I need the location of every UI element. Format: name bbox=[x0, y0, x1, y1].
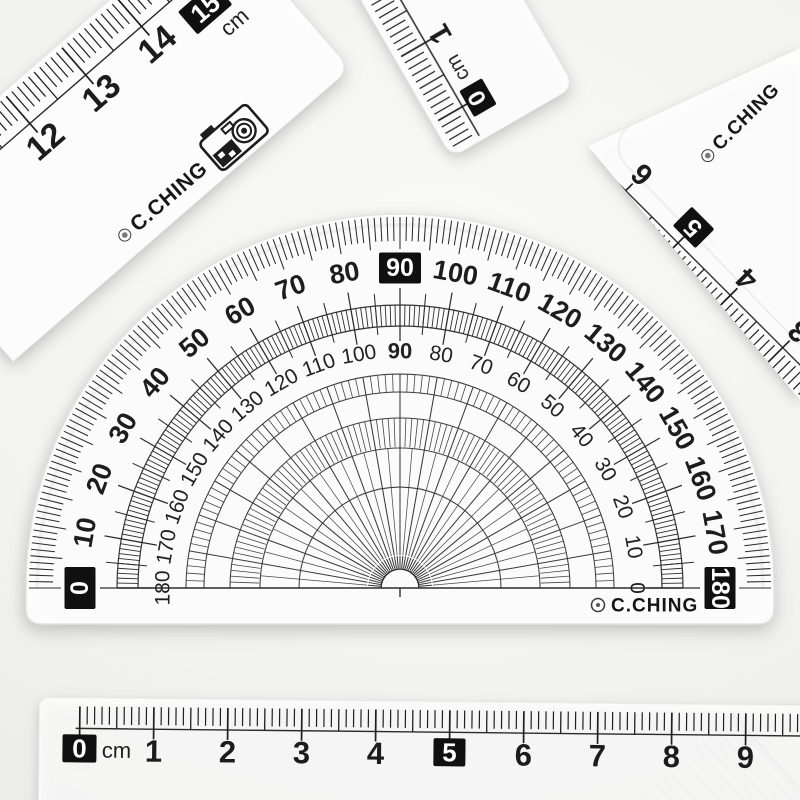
ruler-number-boxed: 0 bbox=[62, 734, 96, 762]
ruler-number: 7 bbox=[589, 740, 607, 771]
ruler-number-boxed: 5 bbox=[433, 738, 465, 766]
ruler-bottom-body: 1234678905 cm bbox=[38, 697, 800, 800]
unit-label: cm bbox=[102, 740, 132, 762]
ruler-bottom: 1234678905 cm bbox=[0, 0, 800, 800]
desk-scene: 12131415 cm C.CHING 10 cm bbox=[0, 0, 800, 800]
ruler-number: 8 bbox=[663, 741, 681, 772]
ruler-number: 1 bbox=[145, 736, 163, 767]
ruler-number: 9 bbox=[737, 742, 755, 773]
ruler-number: 4 bbox=[367, 738, 385, 769]
ruler-number: 6 bbox=[515, 739, 533, 770]
ruler-number: 3 bbox=[293, 737, 311, 768]
ruler-number: 2 bbox=[219, 736, 237, 767]
